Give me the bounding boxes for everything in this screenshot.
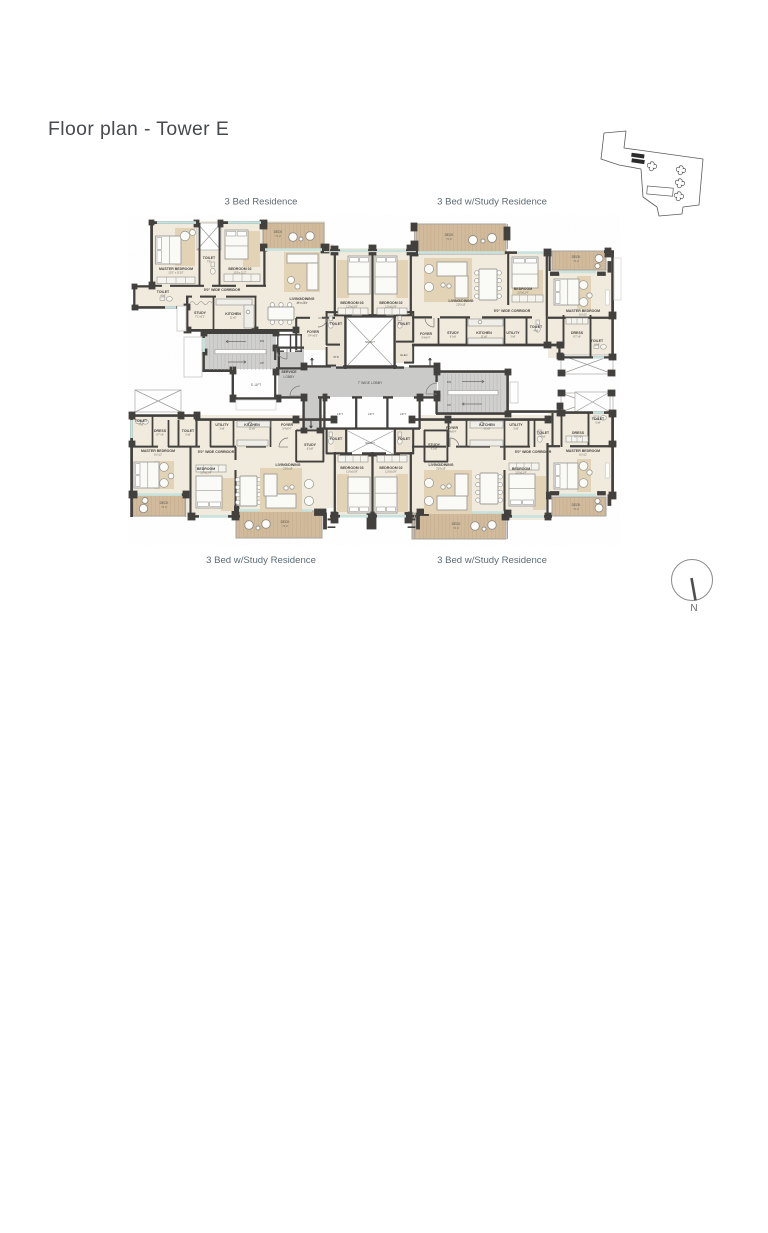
svg-text:N: N xyxy=(690,603,697,614)
svg-text:3 Bed w/Study Residence: 3 Bed w/Study Residence xyxy=(206,555,316,566)
svg-text:Floor plan - Tower E: Floor plan - Tower E xyxy=(48,118,229,140)
svg-text:3 Bed Residence: 3 Bed Residence xyxy=(224,197,297,208)
svg-text:3 Bed w/Study Residence: 3 Bed w/Study Residence xyxy=(437,197,547,208)
svg-text:3 Bed w/Study Residence: 3 Bed w/Study Residence xyxy=(437,555,547,566)
